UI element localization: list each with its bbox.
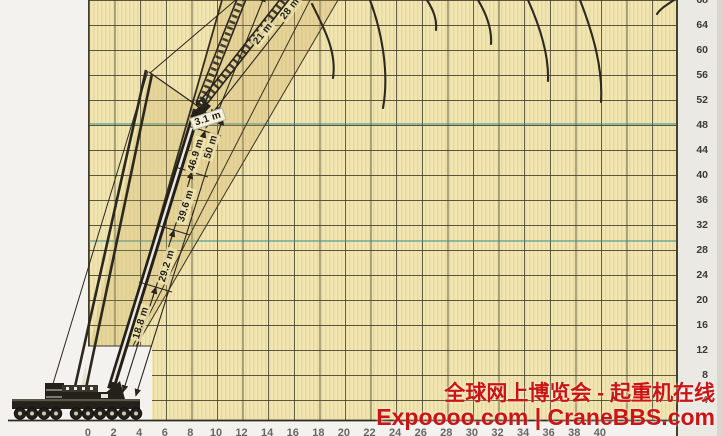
radius-axis-tick-label: 20: [331, 427, 357, 436]
radius-axis-tick-label: 16: [280, 427, 306, 436]
height-axis-tick-label: 36: [676, 188, 720, 213]
radius-axis-tick-label: 2: [101, 427, 127, 436]
radius-axis-tick-label: 6: [152, 427, 178, 436]
watermark: 全球网上博览会 - 起重机在线 Expoooo.com | CraneBBS.c…: [376, 383, 715, 431]
radius-axis-tick-label: 18: [306, 427, 332, 436]
height-axis-tick-label: 16: [676, 313, 720, 338]
radius-axis-tick-label: 4: [126, 427, 152, 436]
height-axis-tick-label: 52: [676, 88, 720, 113]
height-axis-tick-label: 28: [676, 238, 720, 263]
crane-diagram-artwork: [0, 0, 723, 436]
tip-path-curves: [312, 0, 674, 108]
height-axis-tick-label: 60: [676, 38, 720, 63]
wheels: [14, 408, 141, 419]
height-axis-tick-label: 48: [676, 113, 720, 138]
height-axis-tick-label: 12: [676, 338, 720, 363]
height-axis-tick-label: 56: [676, 63, 720, 88]
radius-axis-tick-label: 14: [254, 427, 280, 436]
height-axis-tick-label: 24: [676, 263, 720, 288]
radius-axis-tick-label: 0: [75, 427, 101, 436]
watermark-chinese-line: 全球网上博览会 - 起重机在线: [376, 383, 715, 406]
height-axis-tick-label: 20: [676, 288, 720, 313]
height-axis-tick-label: 32: [676, 213, 720, 238]
height-axis-tick-label: 64: [676, 13, 720, 38]
height-axis-tick-label: 40: [676, 163, 720, 188]
height-axis-labels: 68646056524844403632282420161284: [676, 0, 720, 413]
watermark-url-line: Expoooo.com | CraneBBS.com: [376, 405, 715, 430]
radius-axis-tick-label: 12: [229, 427, 255, 436]
scanned-crane-range-chart: 18.8 m 29.2 m 39.6 m 46.9 m 50 m 3.1 m 2…: [0, 0, 723, 436]
radius-axis-tick-label: 8: [178, 427, 204, 436]
height-axis-tick-label: 68: [676, 0, 720, 13]
height-axis-tick-label: 44: [676, 138, 720, 163]
radius-axis-tick-label: 10: [203, 427, 229, 436]
